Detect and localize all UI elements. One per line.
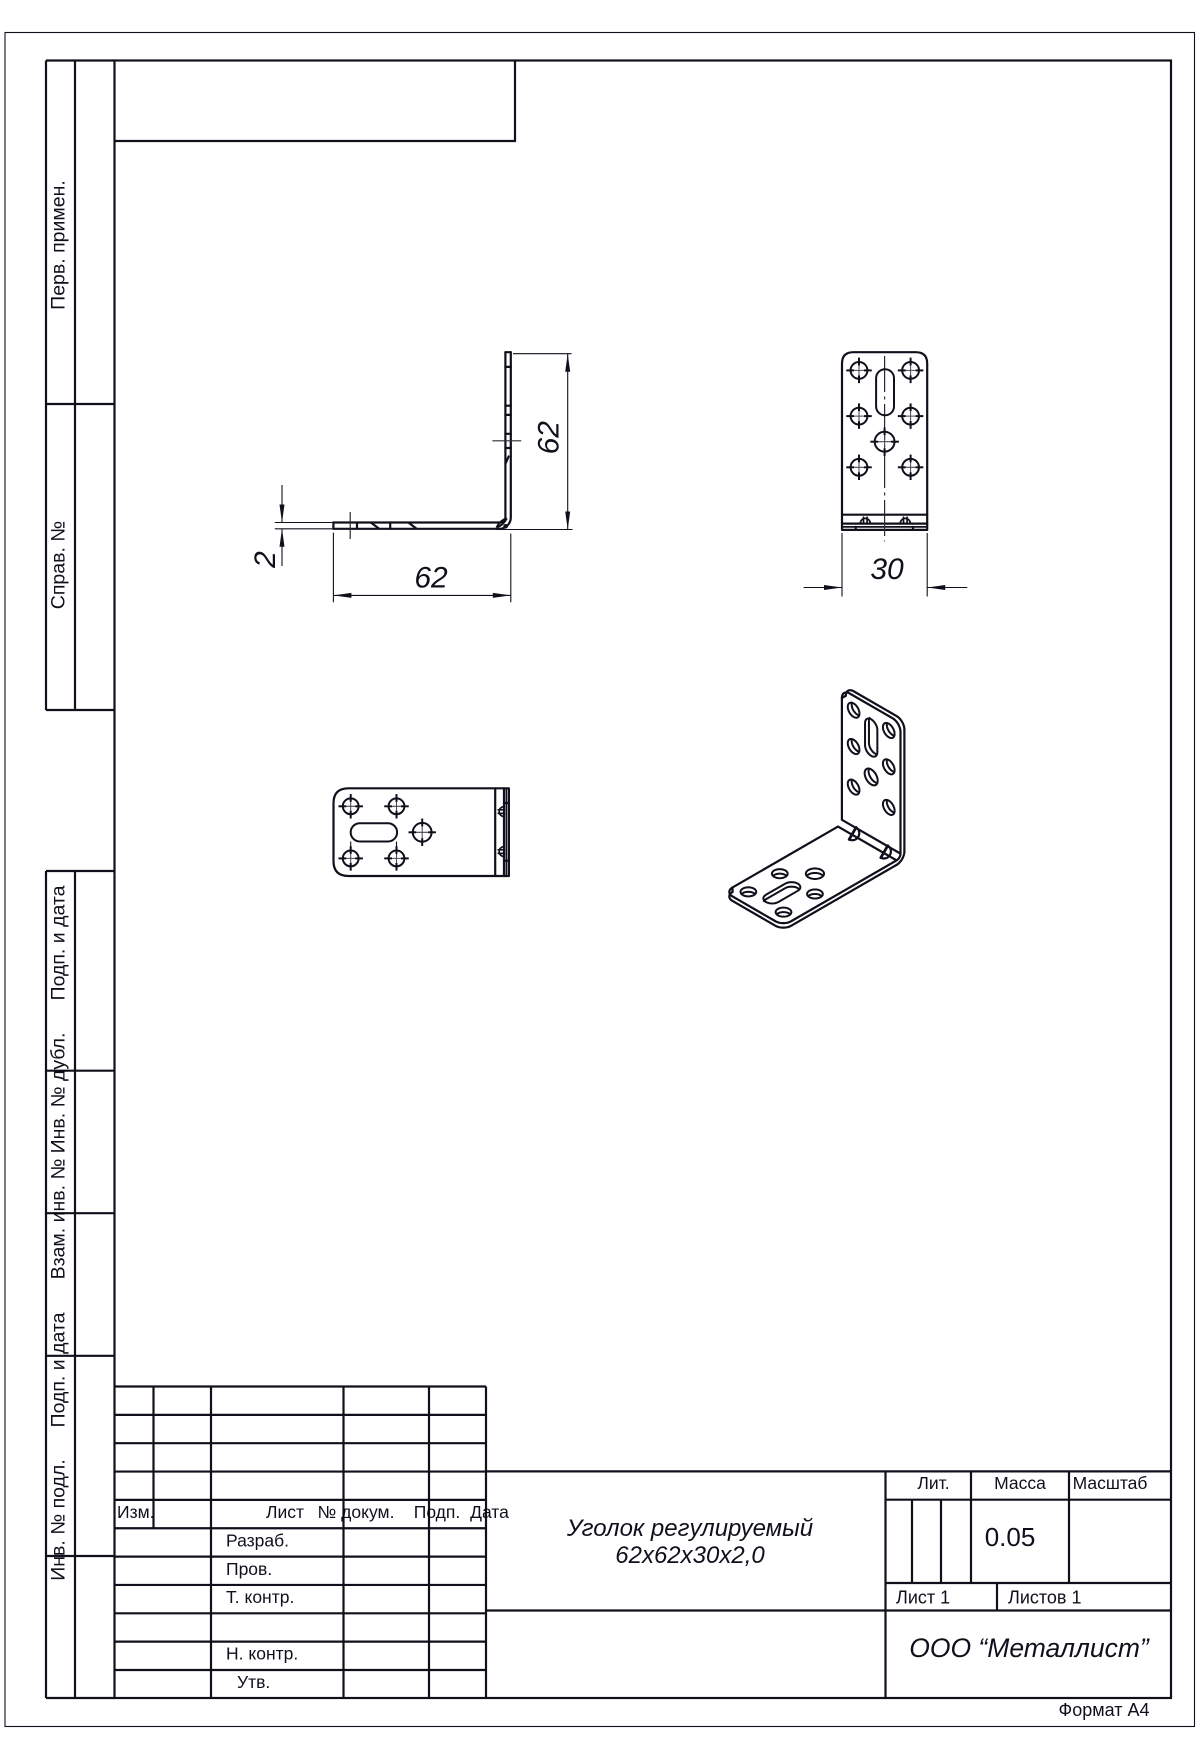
- svg-text:Подп. и дата: Подп. и дата: [48, 1312, 70, 1427]
- svg-text:Лист 1: Лист 1: [896, 1588, 950, 1608]
- svg-text:Формат А4: Формат А4: [1059, 1700, 1150, 1720]
- svg-text:Масштаб: Масштаб: [1073, 1473, 1148, 1493]
- svg-text:62: 62: [533, 421, 566, 455]
- svg-text:62х62х30х2,0: 62х62х30х2,0: [615, 1542, 765, 1569]
- svg-text:Перв. примен.: Перв. примен.: [48, 180, 70, 310]
- svg-text:Взам. инв. №: Взам. инв. №: [48, 1159, 70, 1280]
- svg-text:Инв. № дубл.: Инв. № дубл.: [48, 1033, 70, 1154]
- svg-text:Лист: Лист: [266, 1502, 304, 1522]
- svg-text:Масса: Масса: [994, 1473, 1046, 1493]
- svg-text:Н. контр.: Н. контр.: [226, 1644, 298, 1664]
- svg-text:Утв.: Утв.: [237, 1672, 270, 1692]
- svg-text:30: 30: [870, 553, 904, 586]
- svg-text:Т. контр.: Т. контр.: [226, 1587, 294, 1607]
- svg-text:Инв. № подл.: Инв. № подл.: [48, 1459, 70, 1580]
- svg-text:0.05: 0.05: [985, 1522, 1036, 1552]
- svg-text:№ докум.: № докум.: [318, 1502, 395, 1522]
- svg-text:Справ. №: Справ. №: [48, 521, 70, 609]
- svg-text:Пров.: Пров.: [226, 1559, 272, 1579]
- svg-text:Подп.: Подп.: [414, 1502, 460, 1522]
- svg-text:Листов 1: Листов 1: [1008, 1588, 1082, 1608]
- svg-text:Дата: Дата: [470, 1502, 509, 1522]
- svg-text:Подп. и дата: Подп. и дата: [48, 885, 70, 1000]
- svg-text:Лит.: Лит.: [917, 1473, 949, 1493]
- svg-text:Разраб.: Разраб.: [226, 1531, 289, 1551]
- svg-text:2: 2: [249, 551, 282, 569]
- svg-text:Уголок регулируемый: Уголок регулируемый: [566, 1515, 813, 1542]
- svg-text:62: 62: [414, 562, 448, 595]
- svg-text:Изм.: Изм.: [117, 1502, 155, 1522]
- svg-text:ООО “Металлист”: ООО “Металлист”: [909, 1633, 1150, 1663]
